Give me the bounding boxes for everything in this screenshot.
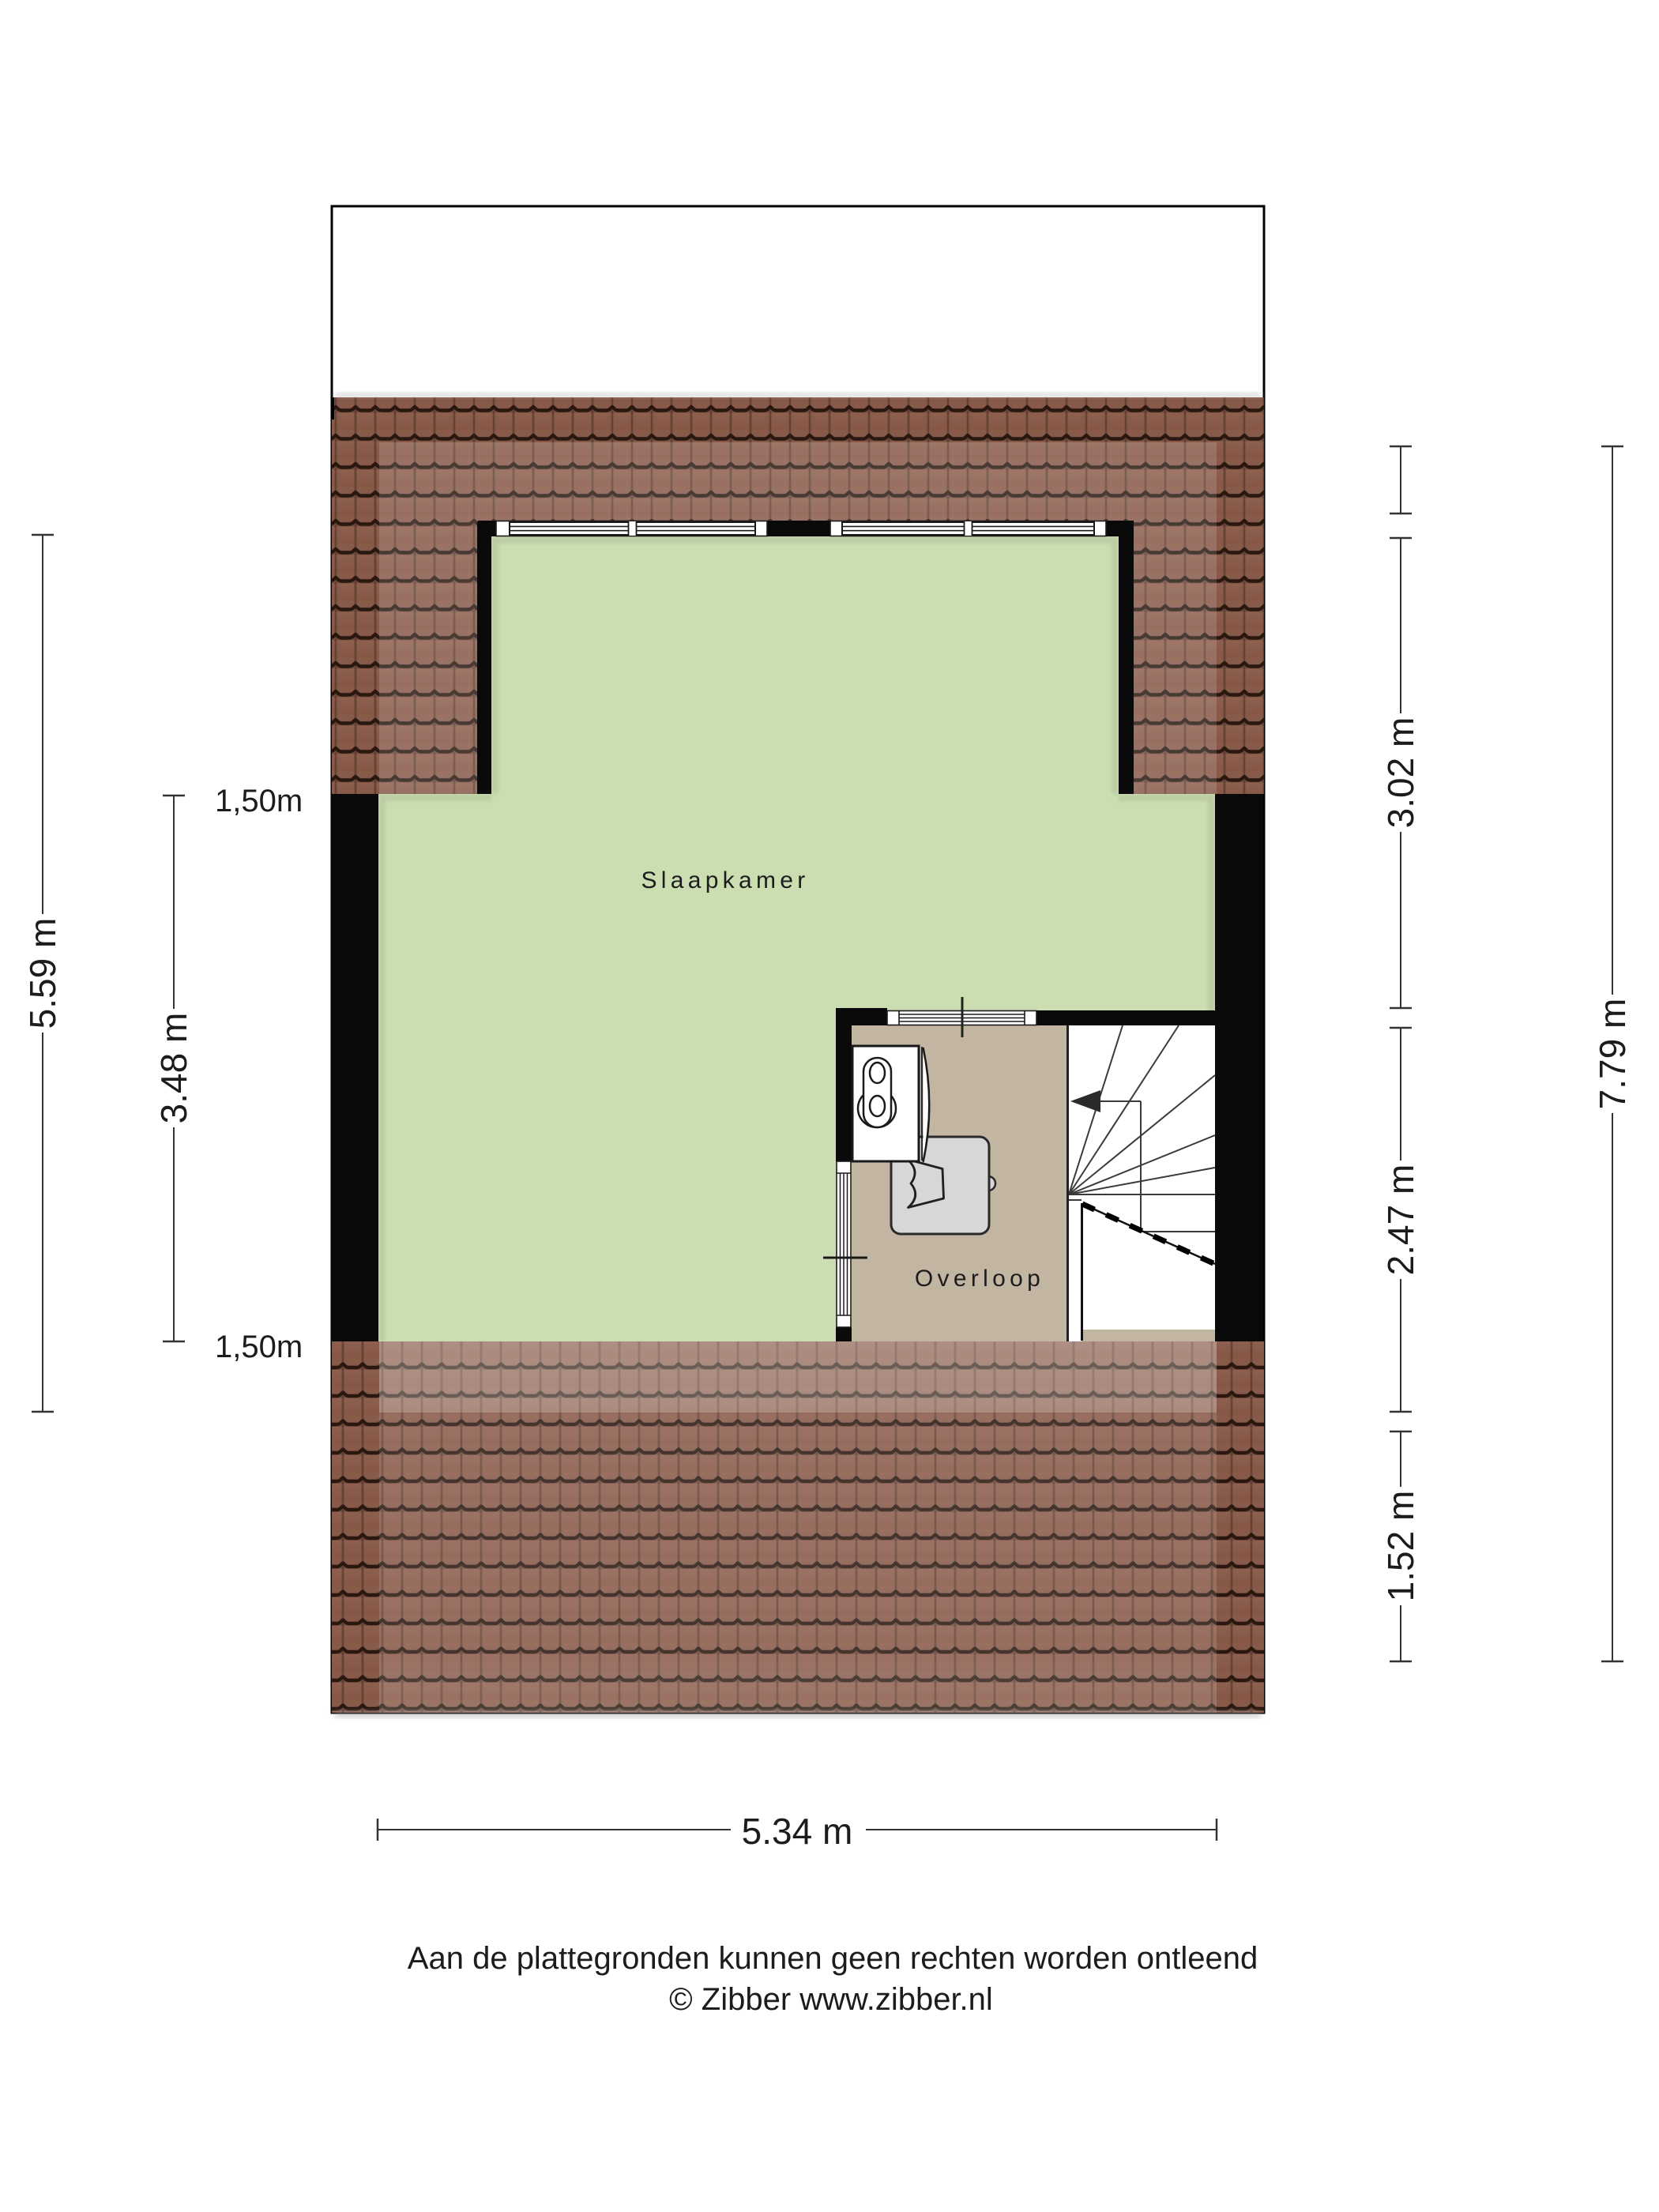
svg-text:5.59 m: 5.59 m <box>22 918 63 1029</box>
svg-text:3.48 m: 3.48 m <box>153 1013 194 1124</box>
svg-text:7.79 m: 7.79 m <box>1592 999 1633 1110</box>
svg-text:2.47 m: 2.47 m <box>1380 1164 1421 1276</box>
svg-text:Aan de plattegronden kunnen ge: Aan de plattegronden kunnen geen rechten… <box>408 1941 1258 1976</box>
svg-text:5.34 m: 5.34 m <box>742 1811 853 1852</box>
svg-text:Overloop: Overloop <box>915 1266 1044 1292</box>
svg-text:1.52 m: 1.52 m <box>1380 1491 1421 1602</box>
svg-text:1,50m: 1,50m <box>215 1330 303 1364</box>
svg-text:3.02 m: 3.02 m <box>1380 717 1421 829</box>
svg-text:1,50m: 1,50m <box>215 784 303 818</box>
svg-text:© Zibber www.zibber.nl: © Zibber www.zibber.nl <box>669 1982 993 2017</box>
svg-text:Slaapkamer: Slaapkamer <box>641 867 809 893</box>
